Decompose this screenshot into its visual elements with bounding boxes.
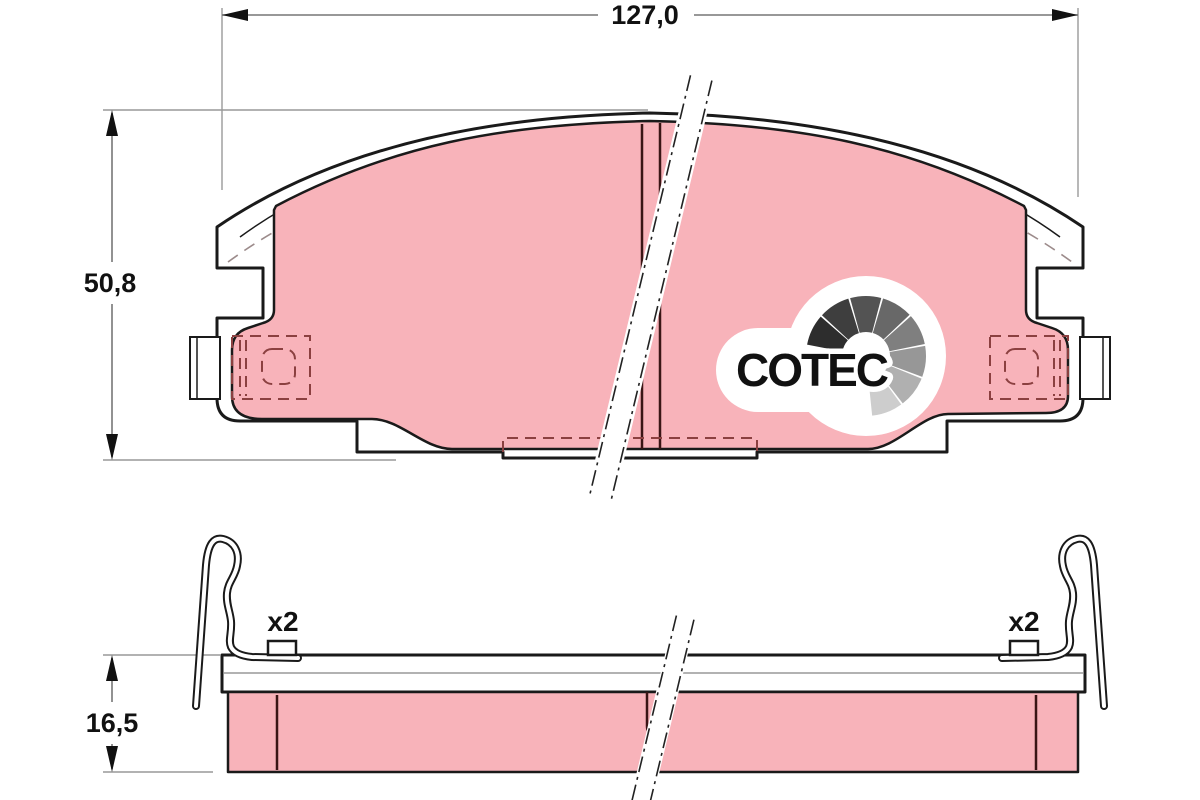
thickness-arrow-down [106,746,118,772]
side-view: x2 x2 [196,539,1104,800]
brake-pad-technical-drawing: 127,0 50,8 [0,0,1200,800]
clip-count-label-left: x2 [267,606,298,637]
tab-right [1080,337,1110,399]
tab-left [190,337,220,399]
thickness-dimension: 16,5 [86,655,139,772]
retention-pin-right [1010,641,1038,655]
tab-right-body [1080,337,1110,399]
height-arrow-down [106,434,118,460]
tab-left-body [190,337,220,399]
clip-count-label-right: x2 [1008,606,1039,637]
top-view: COTEC [190,75,1110,500]
width-arrow-left [222,9,248,21]
height-dimension-label: 50,8 [84,268,137,298]
thickness-dimension-label: 16,5 [86,708,139,738]
width-dimension: 127,0 [222,0,1078,30]
thickness-arrow-up [106,655,118,681]
height-arrow-up [106,110,118,136]
drawing-svg: 127,0 50,8 [0,0,1200,800]
retention-pin-left [268,641,296,655]
logo-wordmark: COTEC [736,344,888,396]
height-dimension: 50,8 [84,110,137,460]
width-arrow-right [1052,9,1078,21]
width-dimension-label: 127,0 [611,0,679,30]
